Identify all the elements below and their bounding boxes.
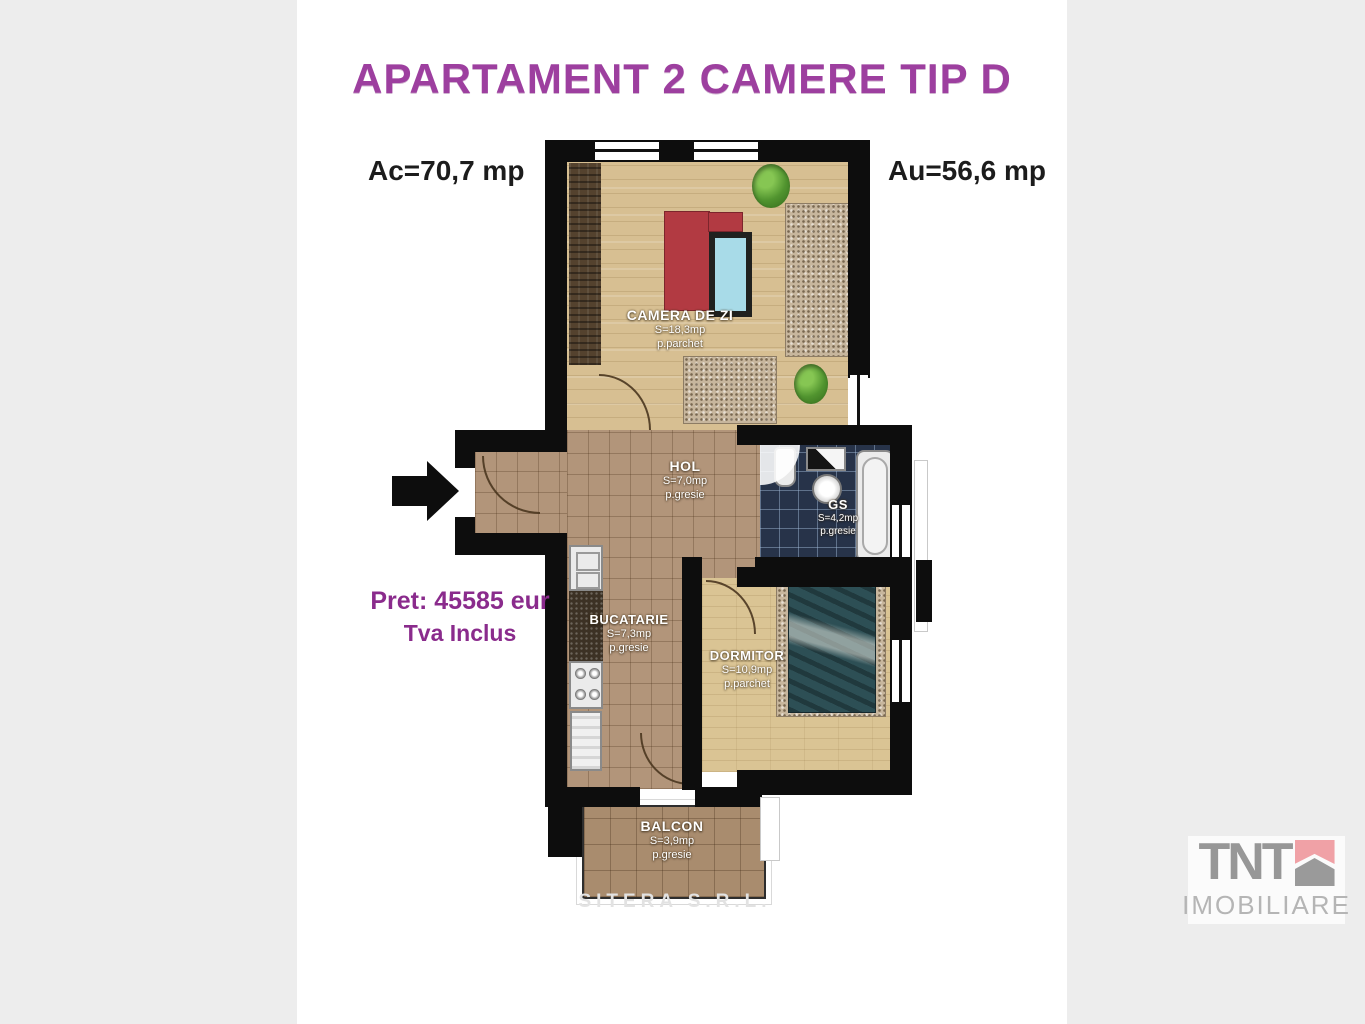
wall-bottom-left [545,787,640,807]
kitchen-sink [569,545,603,591]
watermark: SITERA S.R.L. [545,891,805,913]
room-label-balcony: BALCON S=3,9mp p.gresie [592,818,752,862]
wall-bottom-mid [695,787,762,807]
usable-area-label: Au=56,6 mp [888,155,1046,187]
bed [788,573,876,713]
fridge [570,711,602,771]
living-rug-right [785,203,850,357]
window-bedroom [892,640,910,702]
window-top-1 [595,142,659,160]
shower-unit [806,447,846,471]
balcony-right-strip [760,797,780,861]
logo-brand-text: TNT [1198,840,1290,884]
bath-wall-top [737,425,912,445]
living-rug-bottom [683,356,777,424]
logo-subtitle-text: IMOBILIARE [1182,890,1351,920]
price-block: Pret: 45585 eur Tva Inclus [360,585,560,649]
room-label-kitchen: BUCATARIE S=7,3mp p.gresie [575,612,683,655]
window-living-right [850,375,868,430]
wall-bottom-right [737,770,912,795]
page-title: APARTAMENT 2 CAMERE TIP D [297,55,1067,103]
plant-icon [752,164,790,208]
price-vat: Tva Inclus [360,617,560,649]
room-label-bedroom: DORMITOR S=10,9mp p.parchet [692,648,802,691]
wall-left-upper [545,140,567,438]
shaft-wall [916,560,932,622]
window-top-2 [694,142,758,160]
vestibule-wall-left-b [455,517,475,555]
coffee-table [709,232,752,317]
wall-right-upper [848,140,870,378]
sofa [664,211,710,311]
house-ribbon-icon [1295,840,1335,886]
wall-right-lower [890,425,912,790]
window-bath [892,505,910,557]
balcony-side-wall [548,807,582,857]
built-area-label: Ac=70,7 mp [368,155,524,187]
price-value: Pret: 45585 eur [360,585,560,617]
bedroom-wall-top [755,557,912,580]
sofa-chaise [708,212,743,232]
agency-logo: TNT IMOBILIARE [1188,836,1345,924]
plant-icon [794,364,828,404]
room-label-bath: GS S=4,2mp p.gresie [800,497,876,538]
room-label-hall: HOL S=7,0mp p.gresie [625,458,745,502]
floor-plan-page: APARTAMENT 2 CAMERE TIP D Ac=70,7 mp Au=… [0,0,1365,1024]
room-label-living: CAMERA DE ZI S=18,3mp p.parchet [590,307,770,351]
stove [569,661,603,709]
